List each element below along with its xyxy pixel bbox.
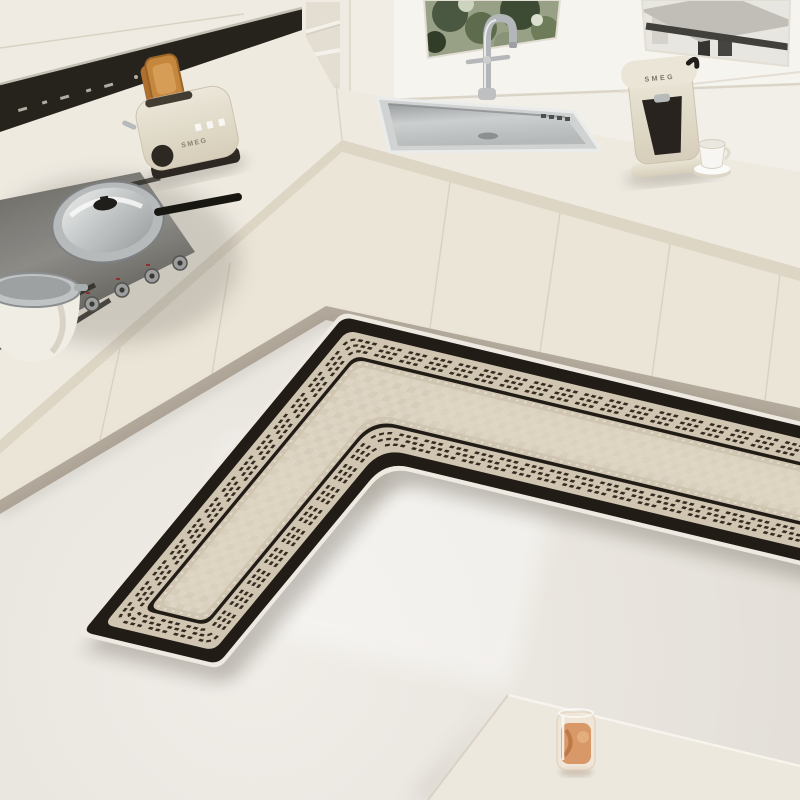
kitchen-photo: SMEG SMEG — [0, 0, 800, 800]
vignette — [0, 0, 800, 800]
